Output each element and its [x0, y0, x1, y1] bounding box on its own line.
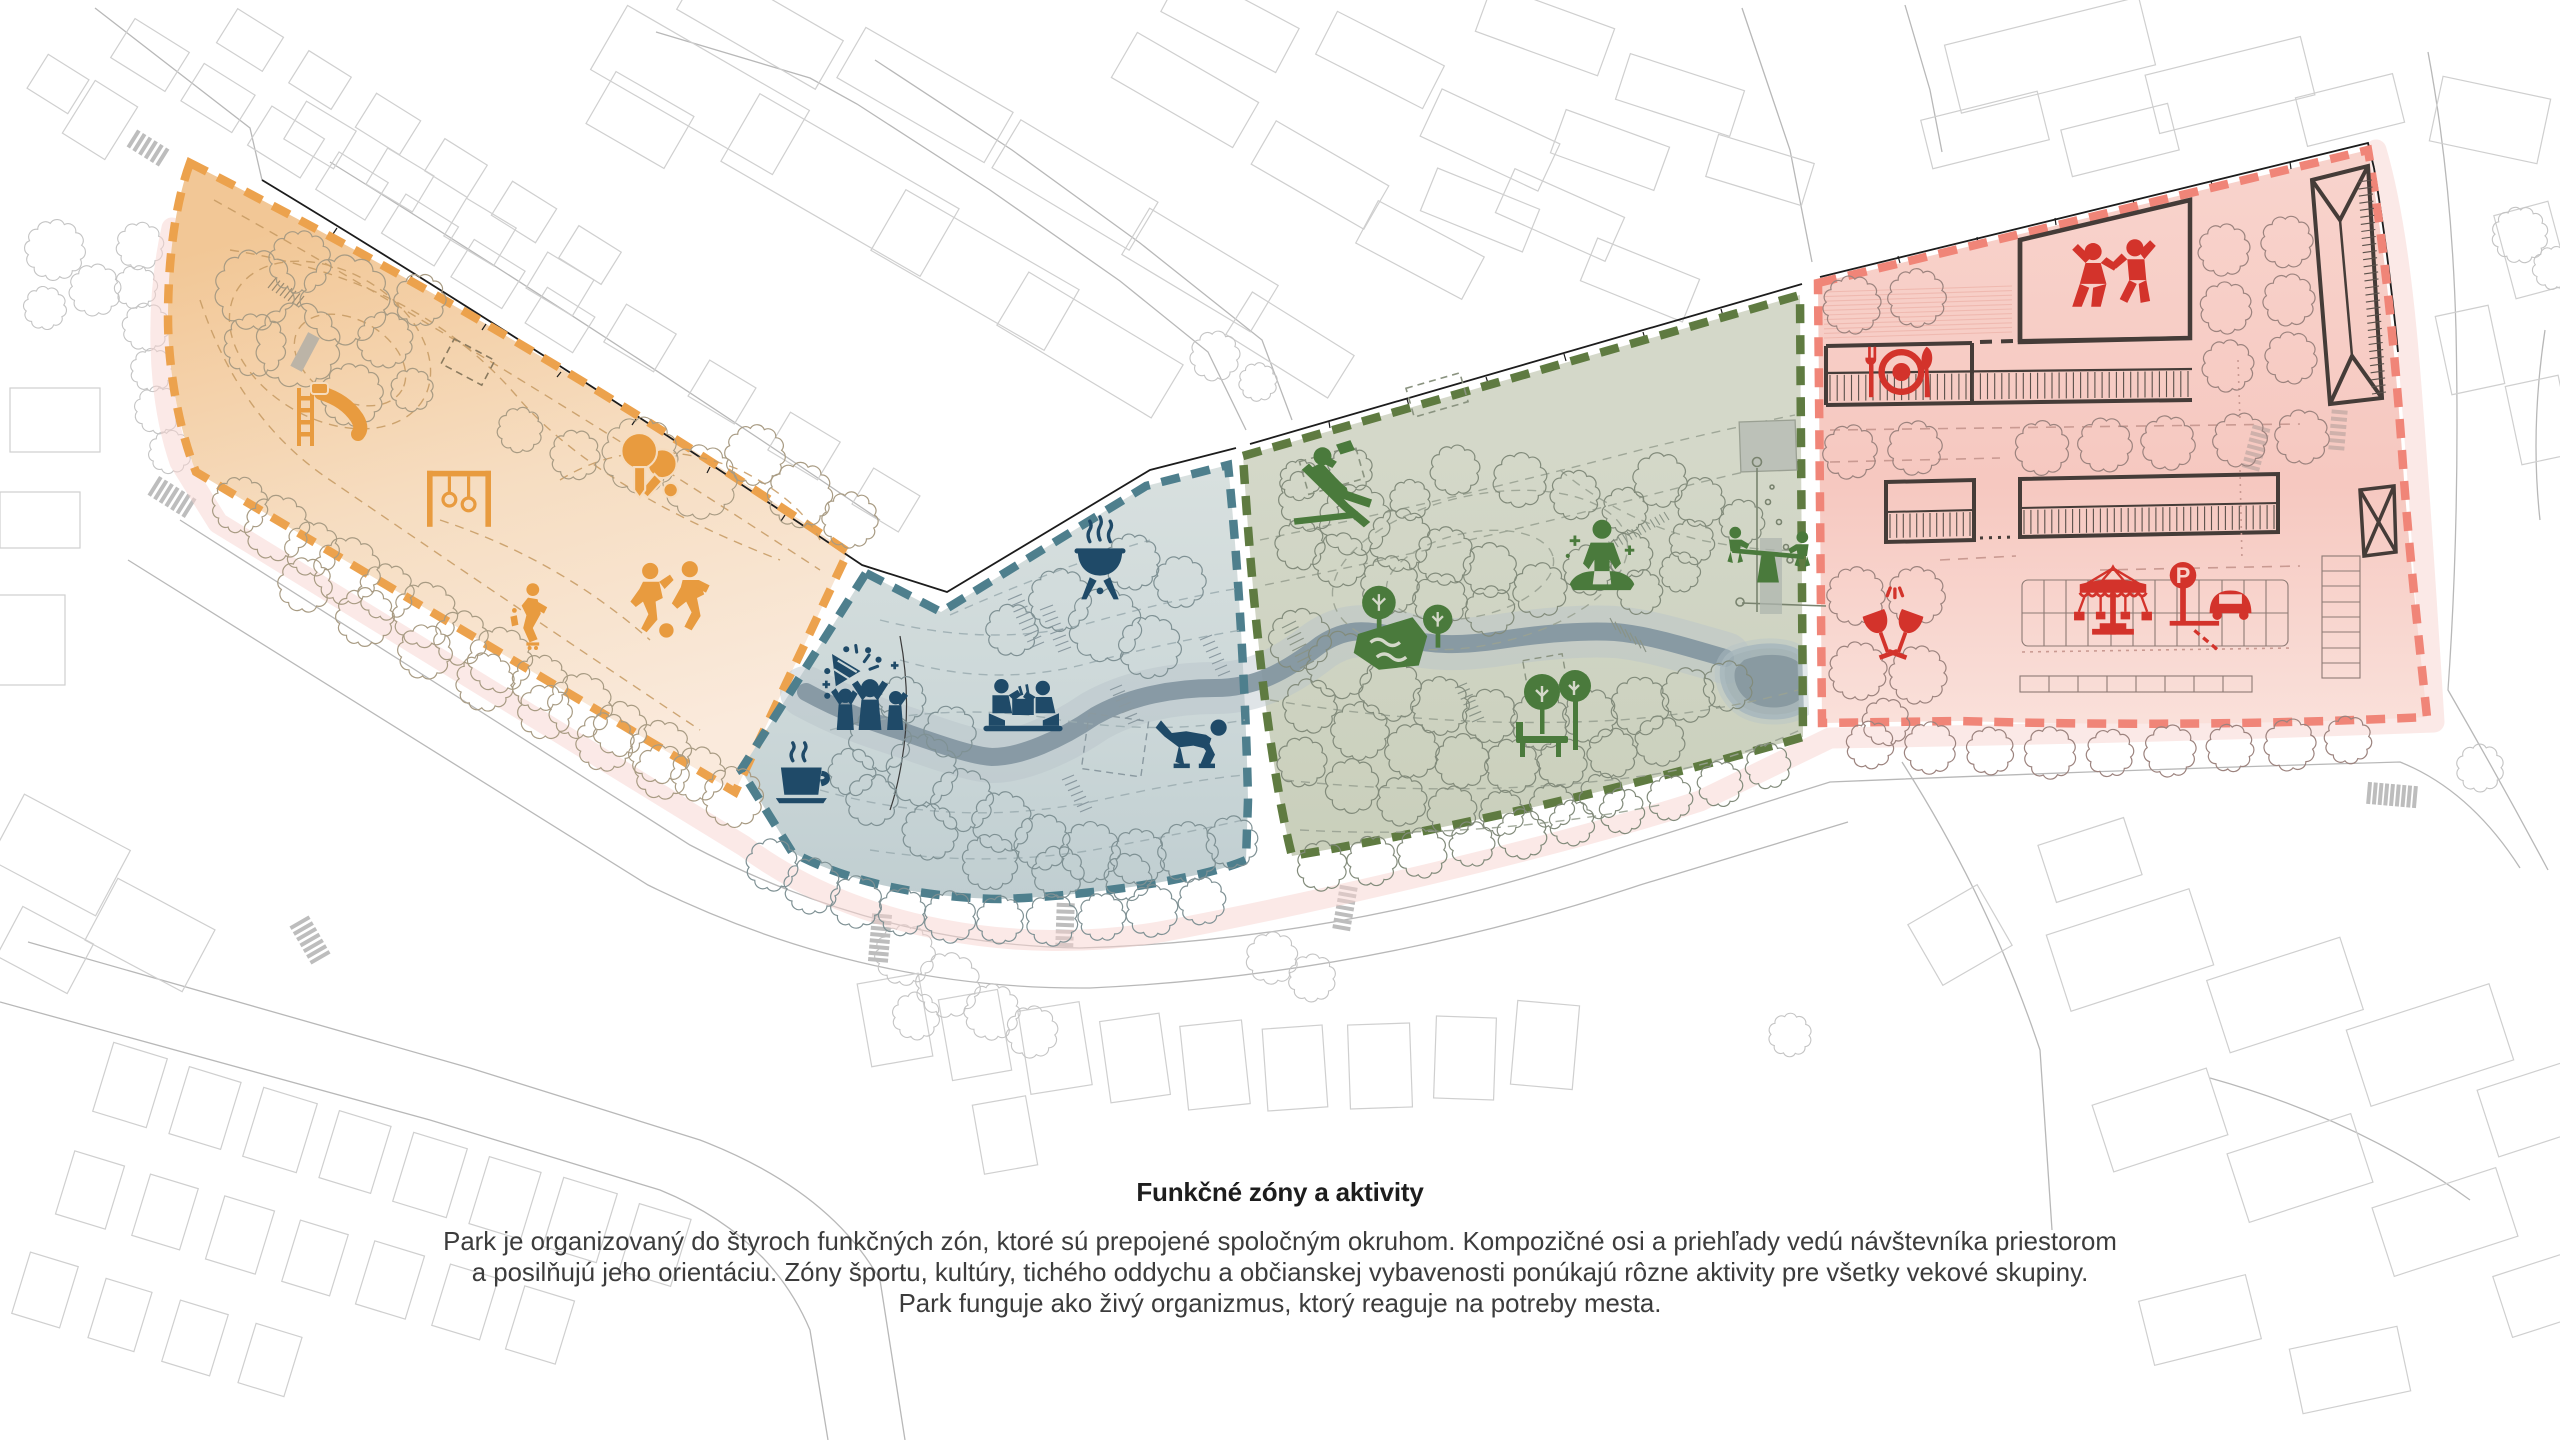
svg-text:Funkčné zóny a aktivity: Funkčné zóny a aktivity — [1136, 1177, 1424, 1207]
svg-text:P: P — [2176, 563, 2191, 588]
svg-text:Park je organizovaný do štyroc: Park je organizovaný do štyroch funkčnýc… — [443, 1228, 2117, 1256]
svg-text:a posilňujú jeho orientáciu. Z: a posilňujú jeho orientáciu. Zóny športu… — [472, 1259, 2089, 1287]
svg-text:Park funguje ako živý organizm: Park funguje ako živý organizmus, ktorý … — [899, 1290, 1662, 1318]
